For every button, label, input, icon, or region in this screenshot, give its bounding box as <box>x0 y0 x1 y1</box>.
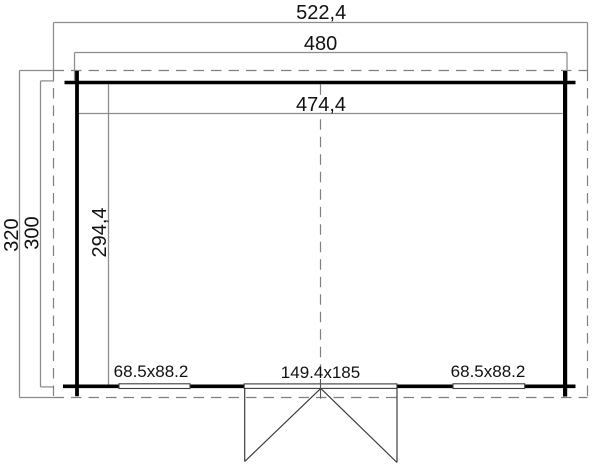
svg-text:149.4x185: 149.4x185 <box>281 363 360 382</box>
svg-text:68.5x88.2: 68.5x88.2 <box>451 362 526 381</box>
svg-text:294,4: 294,4 <box>89 207 111 257</box>
svg-text:522,4: 522,4 <box>296 2 346 24</box>
svg-text:300: 300 <box>22 216 44 249</box>
svg-text:320: 320 <box>1 218 23 251</box>
svg-text:68.5x88.2: 68.5x88.2 <box>114 362 189 381</box>
svg-text:480: 480 <box>304 33 337 55</box>
svg-text:474,4: 474,4 <box>296 94 346 116</box>
